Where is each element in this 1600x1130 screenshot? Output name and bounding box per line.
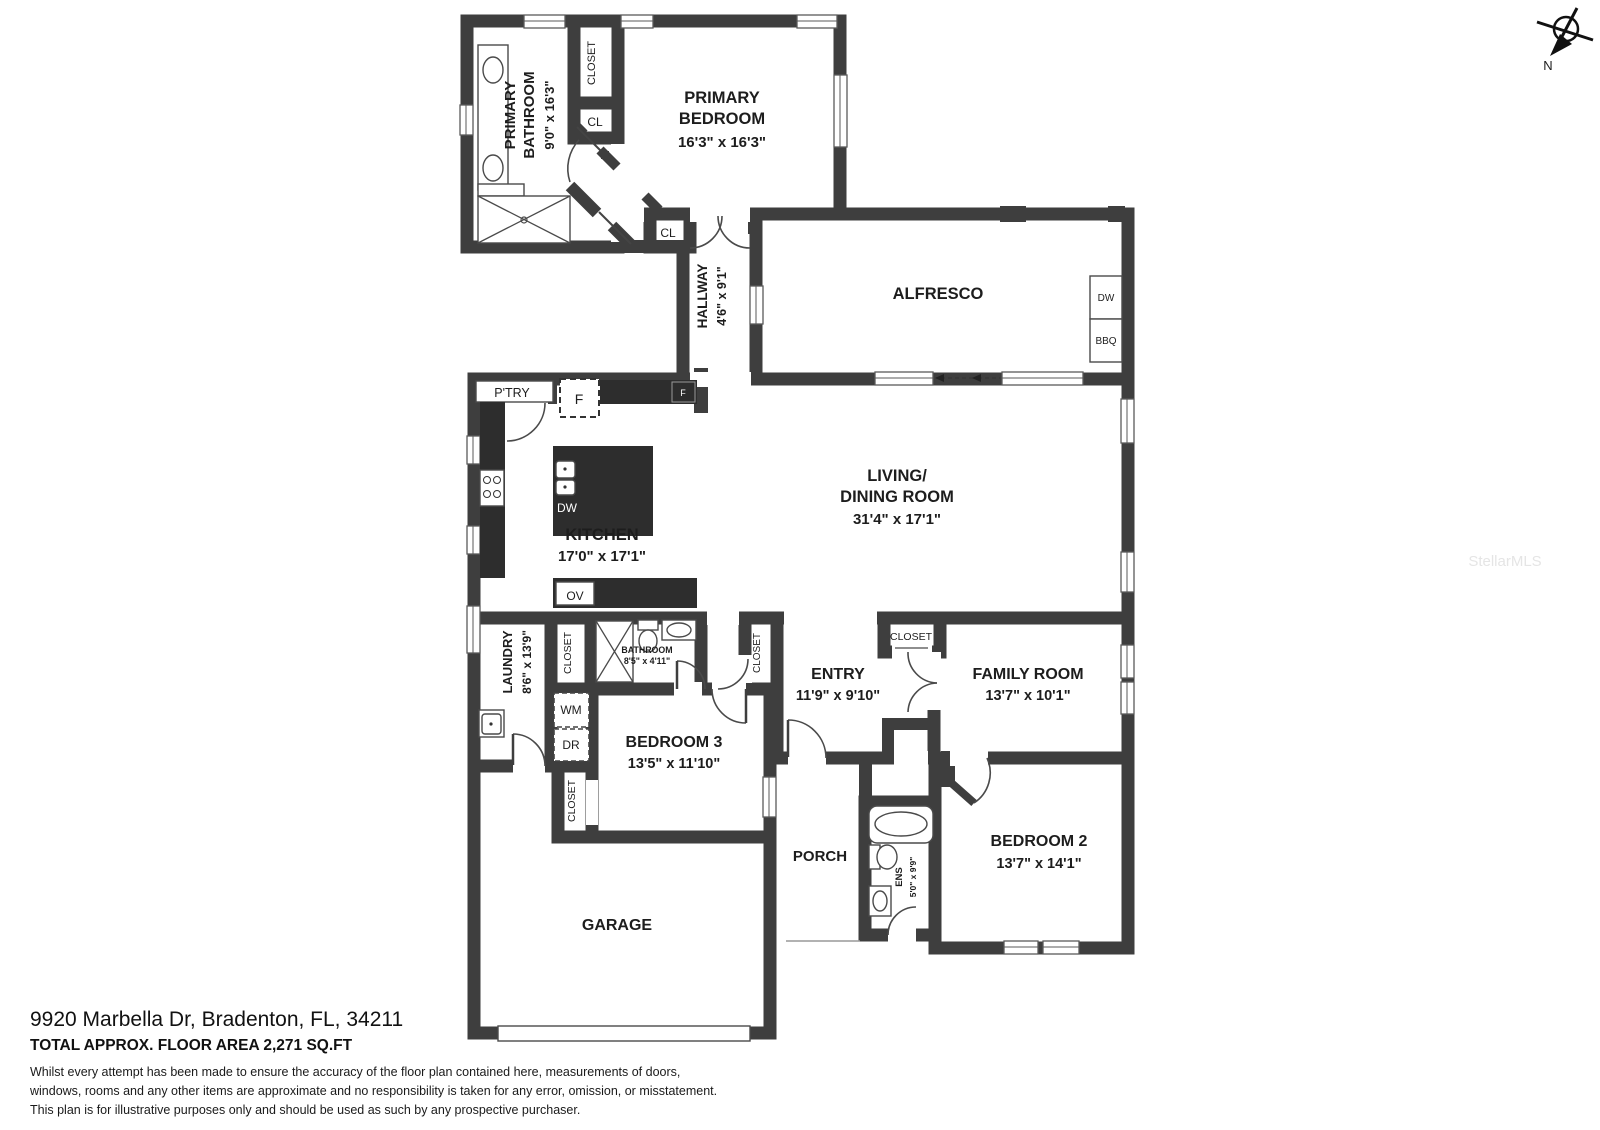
opening-bedroom-vestibule (616, 206, 644, 222)
disclaimer-line-2: windows, rooms and any other items are a… (30, 1082, 717, 1101)
address-line: 9920 Marbella Dr, Bradenton, FL, 34211 (30, 1008, 717, 1032)
bath-sink (667, 623, 691, 637)
label-bathroom: BATHROOM (621, 645, 672, 655)
label-porch: PORCH (793, 848, 847, 865)
label-living: LIVING/ (867, 467, 927, 485)
label-bbq: BBQ (1095, 336, 1116, 347)
opening-hallway-living (690, 372, 751, 387)
label-bedroom2-dims: 13'7" x 14'1" (996, 856, 1081, 872)
floor-plan-drawing: PRIMARY BATHROOM 9'0" x 16'3" CLOSET CL … (0, 0, 1600, 1130)
label-cl-bath: CL (587, 115, 603, 129)
label-alfresco: ALFRESCO (893, 285, 984, 303)
label-kitchen: KITCHEN (565, 526, 638, 544)
footer: 9920 Marbella Dr, Bradenton, FL, 34211 T… (30, 1008, 717, 1120)
ens-bathtub-basin (875, 812, 927, 836)
opening-laundry-door (513, 759, 545, 774)
label-living-2: DINING ROOM (840, 488, 954, 506)
label-primary-bedroom-2: BEDROOM (679, 110, 765, 128)
label-oven: OV (566, 589, 583, 603)
compass-north-label: N (1543, 58, 1552, 73)
label-primary-bedroom-dims: 16'3" x 16'3" (678, 134, 766, 151)
label-closet-bed3: CLOSET (566, 779, 578, 822)
wall-alfresco-pillar-1 (1000, 206, 1026, 222)
disclaimer-line-1: Whilst every attempt has been made to en… (30, 1063, 717, 1082)
toilet-tank (638, 620, 658, 630)
floor-plan-page: PRIMARY BATHROOM 9'0" x 16'3" CLOSET CL … (0, 0, 1600, 1130)
label-family: FAMILY ROOM (972, 666, 1083, 683)
opening-living-entry (784, 611, 877, 625)
opening-double-door (690, 207, 750, 222)
label-laundry-dims: 8'6" x 13'9" (520, 630, 534, 694)
label-dw-alfresco: DW (1098, 293, 1115, 304)
label-bedroom3-dims: 13'5" x 11'10" (628, 756, 720, 772)
label-dryer: DR (562, 738, 580, 752)
opening-front-door (788, 751, 826, 766)
label-bedroom2: BEDROOM 2 (991, 833, 1088, 850)
label-pantry: P'TRY (494, 386, 530, 400)
wall-alfresco-pillar-2 (1108, 206, 1125, 222)
label-entry: ENTRY (811, 666, 865, 683)
label-cl-hall: CL (660, 226, 676, 240)
label-family-dims: 13'7" x 10'1" (985, 688, 1070, 704)
label-ens: ENS (894, 867, 905, 887)
label-garage: GARAGE (582, 917, 653, 934)
sink-primary-2 (483, 155, 503, 181)
wall-entry-notch-v (882, 718, 894, 764)
label-living-dims: 31'4" x 17'1" (853, 511, 941, 528)
label-closet-laundry: CLOSET (562, 631, 574, 674)
ens-sink (873, 891, 887, 911)
label-closet-family: CLOSET (890, 631, 933, 643)
opening-bed3-closet (586, 780, 598, 825)
ens-toilet-bowl (877, 845, 897, 869)
label-washer: WM (560, 703, 581, 717)
sink-drain (563, 485, 566, 488)
stellar-mls-watermark: StellarMLS (1468, 553, 1541, 570)
opening-bed2-door (950, 751, 988, 766)
wall-porch-ens-stub (859, 752, 872, 808)
compass: N (1537, 8, 1593, 73)
label-primary-bedroom: PRIMARY (684, 89, 759, 107)
opening-notch-hall (894, 751, 928, 766)
wall-bedroom2 (935, 758, 1128, 948)
shower-bench (478, 184, 524, 196)
label-laundry: LAUNDRY (500, 630, 515, 693)
label-fridge: F (575, 391, 584, 407)
sink-drain (489, 722, 492, 725)
opening-ens-door (888, 928, 916, 943)
sink-primary-1 (483, 57, 503, 83)
disclaimer-line-3: This plan is for illustrative purposes o… (30, 1101, 717, 1120)
label-ens-dims: 5'0" x 9'9" (908, 857, 918, 897)
label-kitchen-dims: 17'0" x 17'1" (558, 548, 646, 565)
label-hallway-dims: 4'6" x 9'1" (715, 266, 729, 326)
label-primary-bathroom-dims: 9'0" x 16'3" (542, 80, 557, 149)
sink-drain (563, 467, 566, 470)
opening-bed3-door (712, 682, 746, 697)
disclaimer: Whilst every attempt has been made to en… (30, 1063, 717, 1120)
label-hallway: HALLWAY (695, 264, 710, 329)
label-dw-island: DW (557, 501, 578, 515)
label-primary-bathroom: PRIMARY (502, 81, 519, 150)
label-closet-entry: CLOSET (752, 633, 763, 673)
label-fridge-small: F (680, 388, 686, 398)
label-bedroom3: BEDROOM 3 (626, 734, 723, 751)
floor-area-line: TOTAL APPROX. FLOOR AREA 2,271 SQ.FT (30, 1037, 717, 1055)
compass-north-arrow (1550, 34, 1572, 56)
label-entry-dims: 11'9" x 9'10" (796, 688, 880, 704)
cooktop (480, 470, 504, 506)
label-closet-primary: CLOSET (586, 41, 598, 85)
opening-living-hall (707, 611, 739, 625)
label-primary-bathroom-2: BATHROOM (521, 71, 538, 158)
label-bathroom-dims: 8'5" x 4'11" (624, 656, 670, 666)
opening-family-closet (892, 645, 932, 659)
